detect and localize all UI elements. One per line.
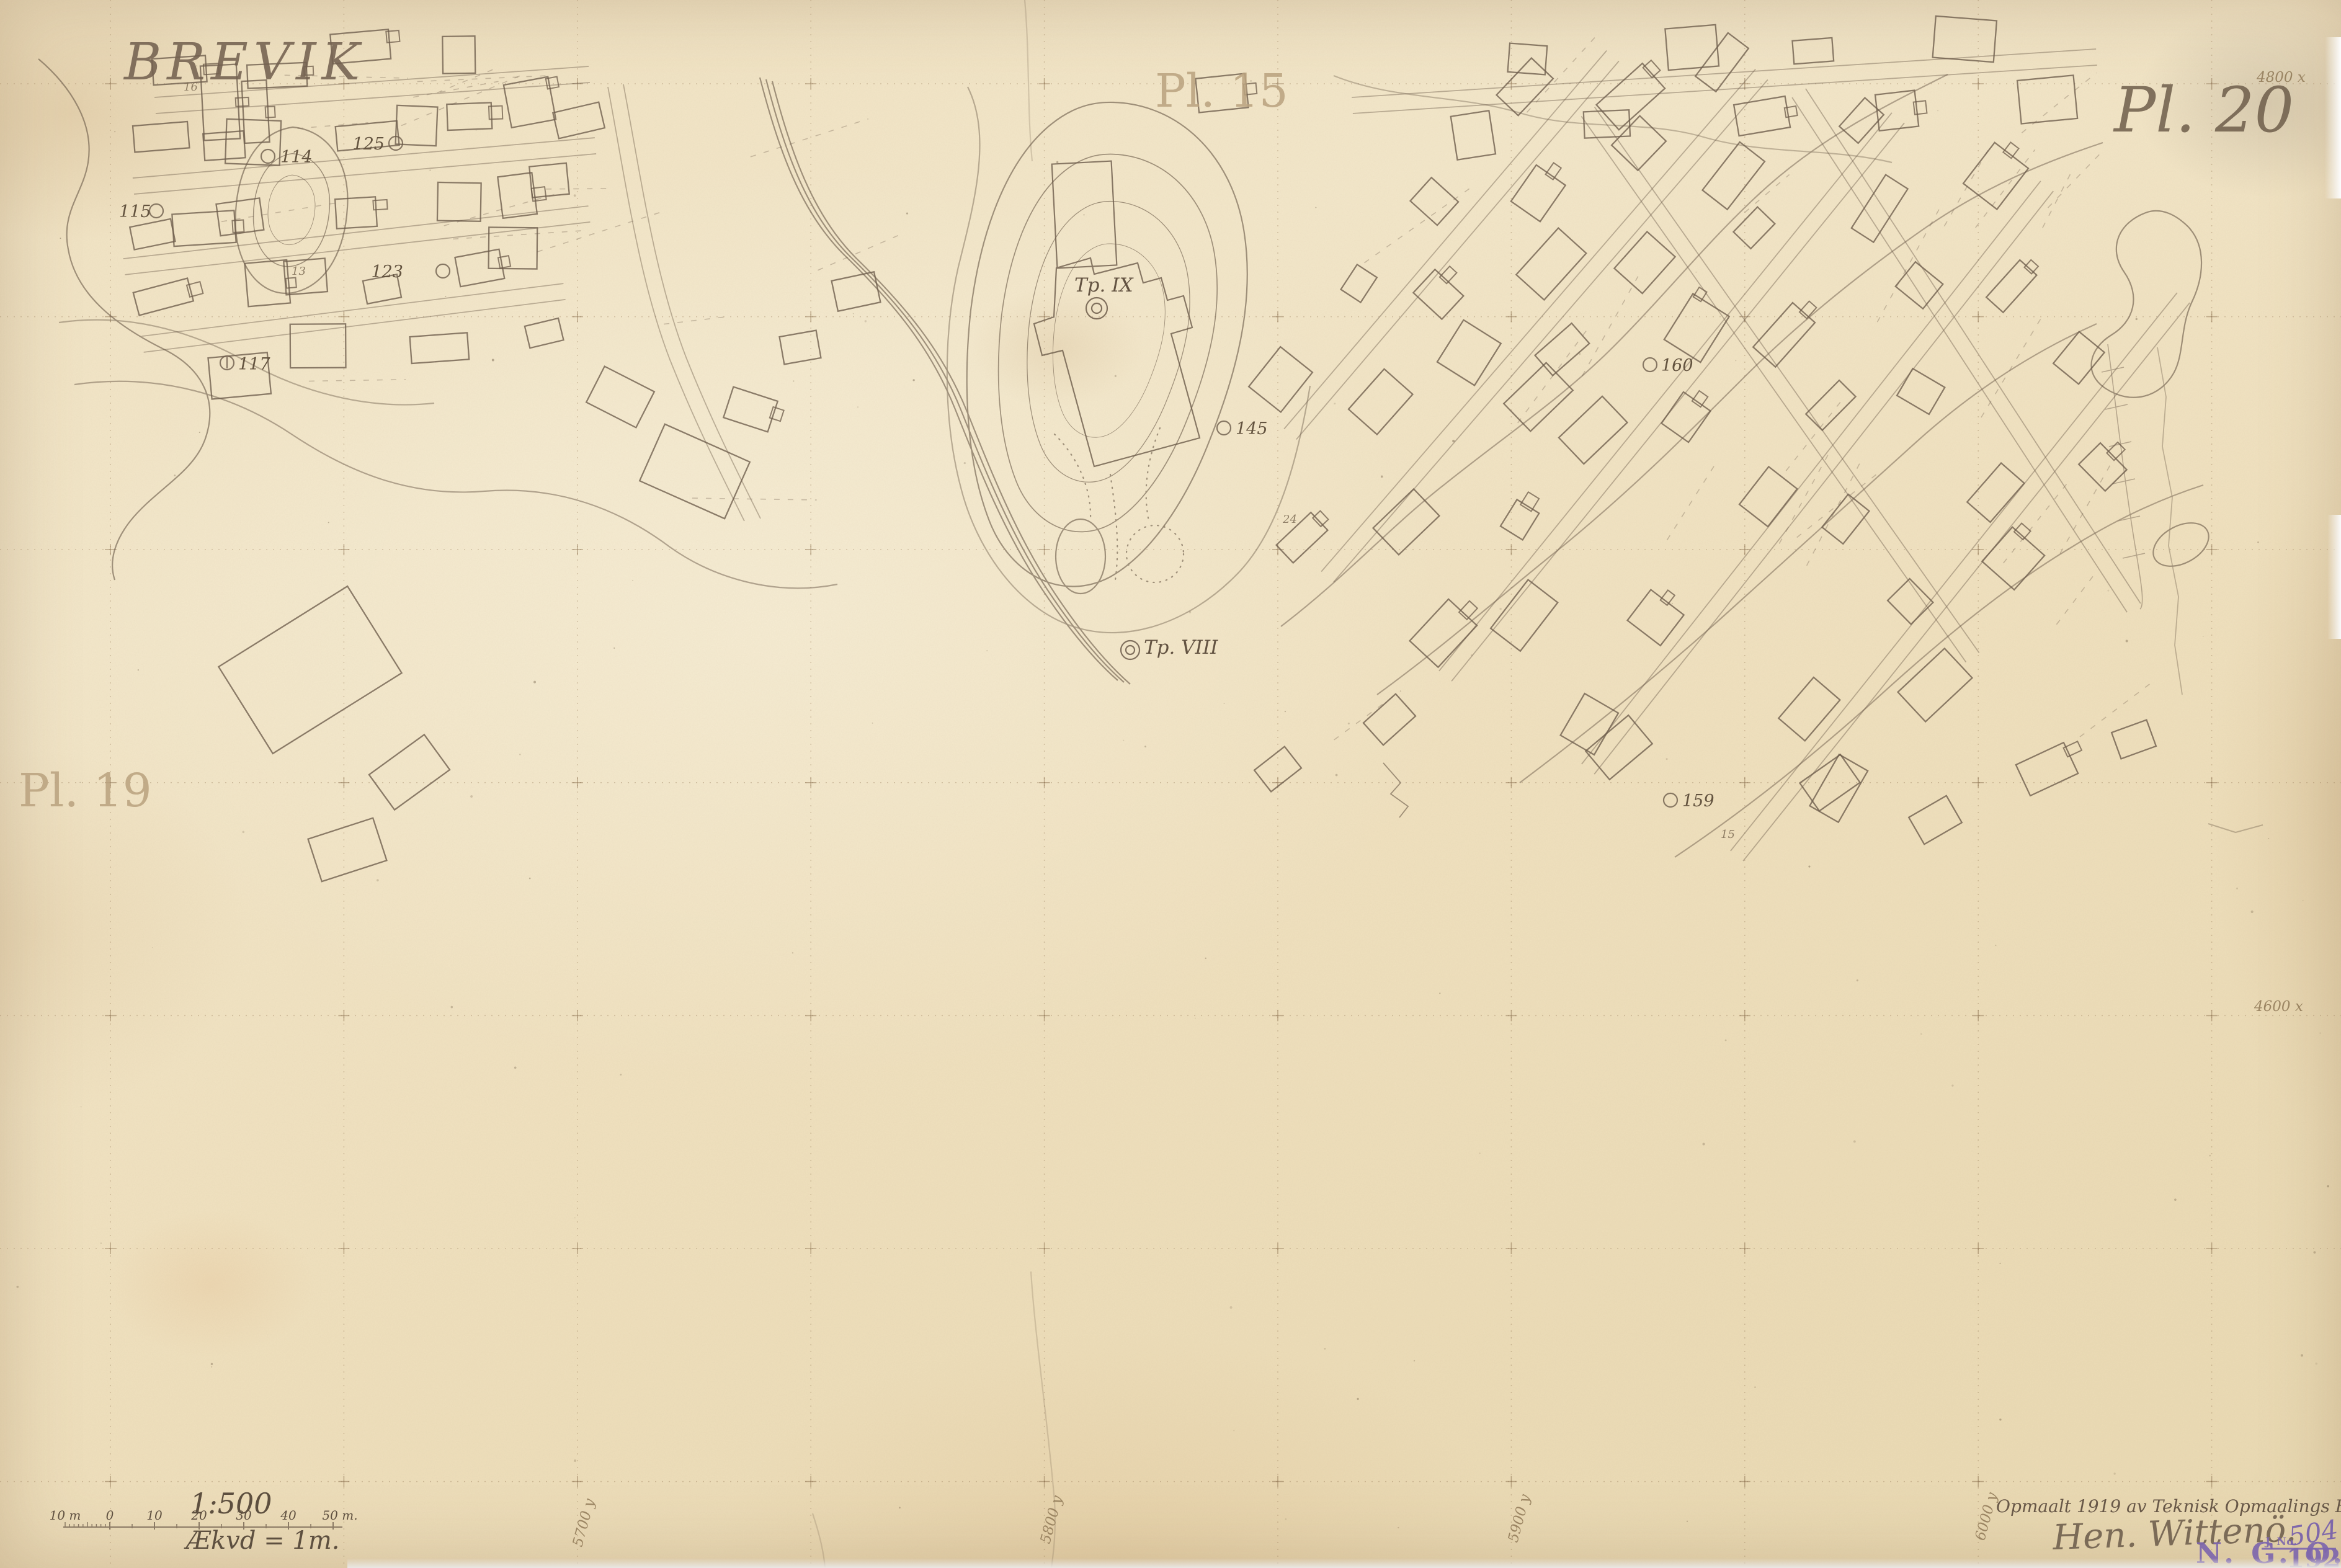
scale-bar-label-40: 40 xyxy=(280,1508,297,1523)
stamp-year: 1921 xyxy=(2286,1543,2341,1568)
map-artwork: BREVIK Pl. 15 Pl. 20 Pl. 19 4800 x 4600 … xyxy=(0,0,2341,1568)
map-title: BREVIK xyxy=(123,33,365,92)
scale-bar-label-20: 20 xyxy=(190,1508,207,1523)
point-label-114: 114 xyxy=(280,148,313,167)
scale-bar-label-30: 30 xyxy=(236,1508,252,1523)
label-tp-ix: Tp. IX xyxy=(1074,274,1134,296)
point-label-160: 160 xyxy=(1661,356,1693,375)
contour-label-24: 24 xyxy=(1282,513,1297,526)
scale-bar-label-0: 0 xyxy=(106,1508,114,1523)
point-label-125: 125 xyxy=(352,135,385,154)
point-label-123: 123 xyxy=(371,262,403,282)
point-label-117: 117 xyxy=(238,355,270,374)
paper-grain xyxy=(0,0,2341,1568)
contour-label-16: 16 xyxy=(184,81,198,94)
plate-top-center: Pl. 15 xyxy=(1155,65,1288,118)
contour-label-15: 15 xyxy=(1721,828,1735,841)
point-label-159: 159 xyxy=(1682,791,1715,811)
map-sheet: BREVIK Pl. 15 Pl. 20 Pl. 19 4800 x 4600 … xyxy=(0,0,2341,1568)
point-label-145: 145 xyxy=(1236,419,1268,439)
grid-label-4600x: 4600 x xyxy=(2254,999,2303,1015)
scale-bar-label-10m: 10 m xyxy=(50,1508,81,1523)
grid-label-4800x: 4800 x xyxy=(2256,69,2306,86)
scale-bar-label-50m: 50 m. xyxy=(322,1508,357,1523)
scale-equidistance: Ækvd = 1m. xyxy=(184,1526,340,1555)
contour-label-13: 13 xyxy=(292,265,306,278)
scale-bar-label-10: 10 xyxy=(146,1508,163,1523)
label-tp-viii: Tp. VIII xyxy=(1144,636,1218,659)
point-label-115: 115 xyxy=(119,202,151,221)
plate-left: Pl. 19 xyxy=(19,764,152,817)
